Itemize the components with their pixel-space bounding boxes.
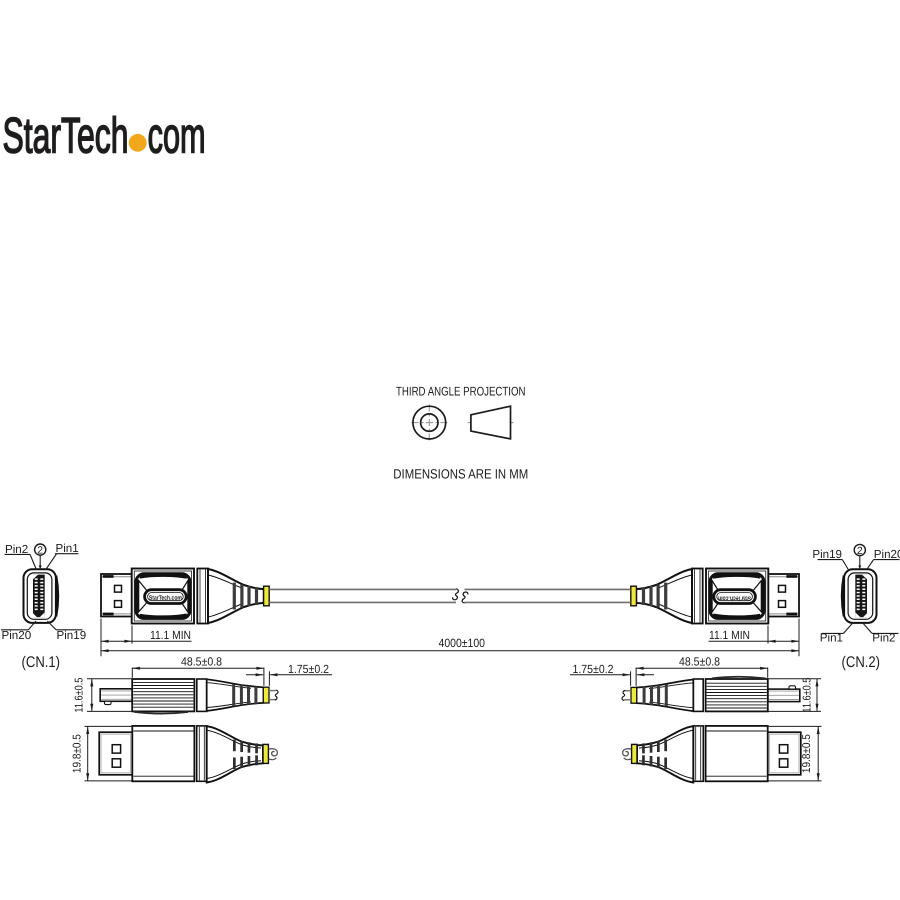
svg-text:THIRD ANGLE PROJECTION: THIRD ANGLE PROJECTION (396, 384, 526, 398)
svg-text:Pin2: Pin2 (5, 543, 28, 556)
svg-text:2: 2 (37, 546, 43, 557)
svg-text:(CN.1): (CN.1) (22, 654, 61, 671)
svg-text:Pin1: Pin1 (820, 631, 843, 644)
svg-text:48.5±0.8: 48.5±0.8 (181, 654, 222, 668)
svg-text:11.1 MIN: 11.1 MIN (709, 628, 750, 642)
svg-text:DIMENSIONS ARE IN MM: DIMENSIONS ARE IN MM (393, 467, 528, 482)
svg-text:com: com (148, 107, 206, 163)
svg-text:Pin20: Pin20 (2, 629, 32, 642)
svg-text:StarTech.com: StarTech.com (149, 595, 182, 602)
svg-text:4000±100: 4000±100 (439, 636, 486, 650)
svg-text:48.5±0.8: 48.5±0.8 (679, 654, 720, 668)
svg-text:StarTech: StarTech (3, 107, 129, 163)
svg-text:1.75±0.2: 1.75±0.2 (573, 662, 614, 676)
svg-text:1.75±0.2: 1.75±0.2 (288, 662, 329, 676)
svg-text:Pin1: Pin1 (56, 542, 79, 555)
svg-text:Pin20: Pin20 (874, 548, 900, 561)
svg-text:11.6±0.5: 11.6±0.5 (801, 678, 813, 713)
svg-text:19.8±0.5: 19.8±0.5 (801, 734, 813, 773)
svg-text:19.8±0.5: 19.8±0.5 (72, 734, 84, 773)
svg-text:StarTech.com: StarTech.com (718, 594, 751, 601)
svg-text:11.6±0.5: 11.6±0.5 (73, 678, 85, 713)
svg-text:2: 2 (857, 546, 863, 557)
svg-text:Pin19: Pin19 (57, 629, 87, 642)
svg-text:11.1 MIN: 11.1 MIN (150, 628, 191, 642)
svg-text:Pin19: Pin19 (812, 548, 842, 561)
svg-text:Pin2: Pin2 (872, 631, 895, 644)
svg-text:(CN.2): (CN.2) (842, 654, 881, 671)
